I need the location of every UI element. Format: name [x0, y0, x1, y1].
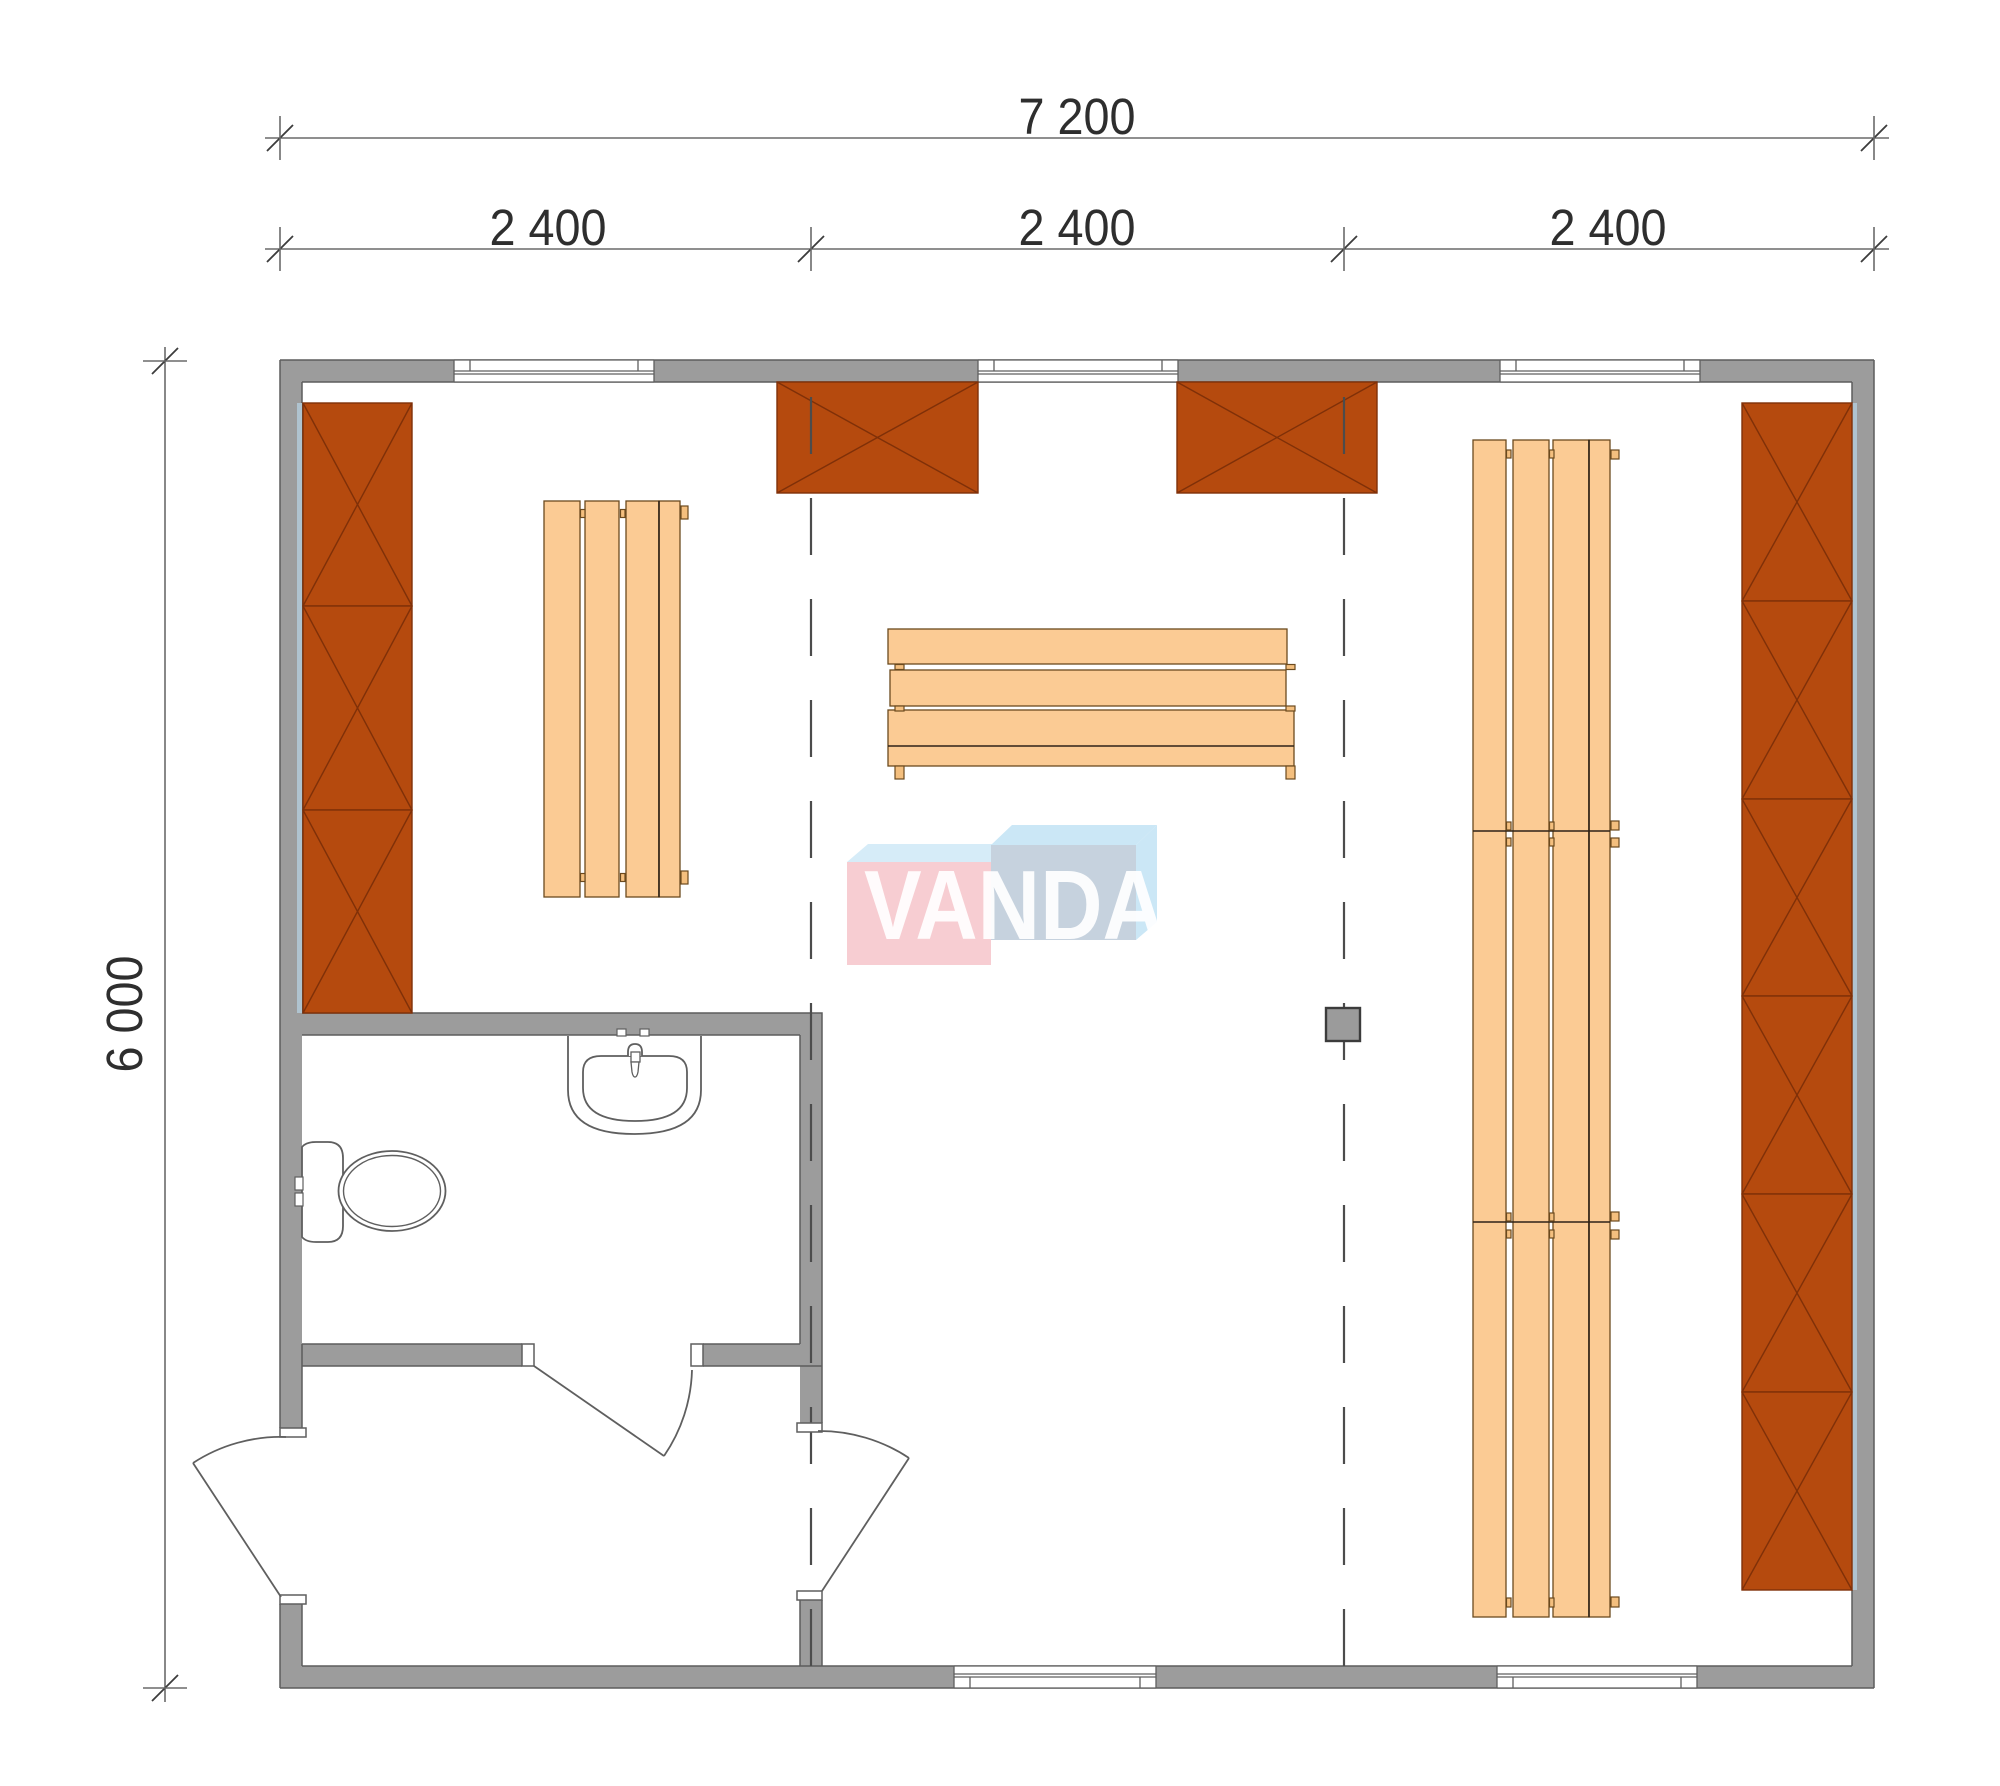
- svg-text:2 400: 2 400: [490, 199, 607, 256]
- svg-text:2 400: 2 400: [1550, 199, 1667, 256]
- svg-text:VANDA: VANDA: [864, 850, 1165, 960]
- svg-text:7 200: 7 200: [1019, 88, 1136, 145]
- svg-text:6 000: 6 000: [96, 956, 153, 1073]
- svg-text:2 400: 2 400: [1019, 199, 1136, 256]
